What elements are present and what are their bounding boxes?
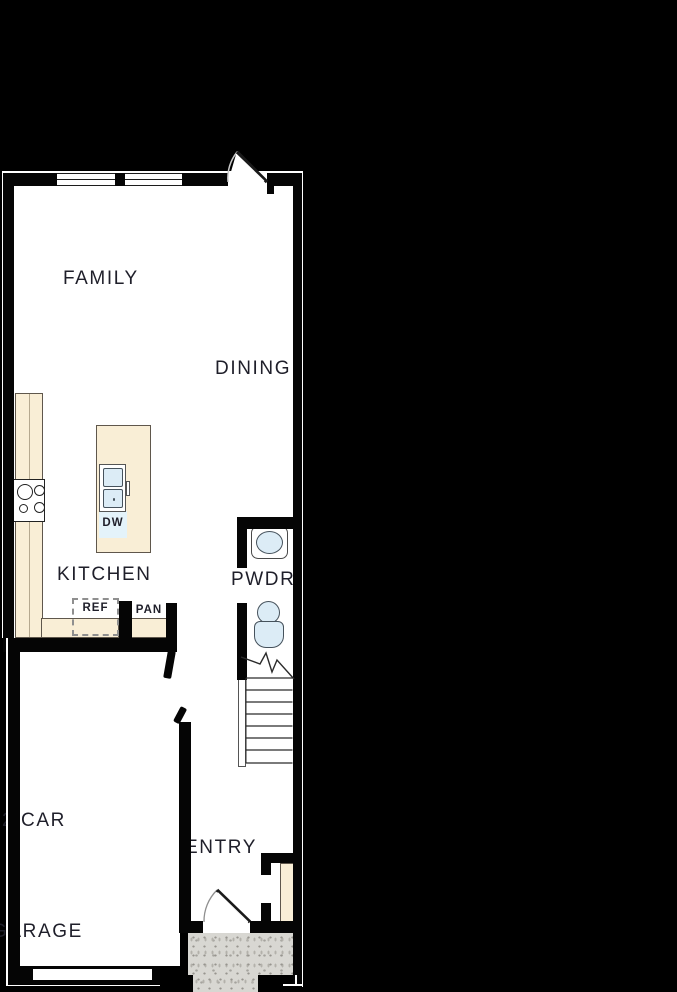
wall-entry-bottom-right [250, 921, 303, 933]
wall-entry-bottom-left [179, 921, 203, 933]
pantry-shelf [131, 618, 167, 638]
porch-step [193, 975, 258, 992]
outline-top [3, 171, 303, 173]
room-label-kitchen: KITCHEN [57, 564, 152, 586]
cooktop-icon [13, 479, 45, 522]
wall-closet-stub-lower [261, 903, 271, 923]
outline-left-garage [6, 638, 8, 985]
wall-powder-left-lower [237, 603, 247, 680]
burner-icon [19, 504, 28, 513]
wall-top-c [182, 173, 228, 186]
room-label-dining: DINING [215, 358, 291, 380]
toilet-bowl [254, 621, 284, 648]
outline-corner-h [283, 984, 303, 986]
burner-icon [17, 484, 33, 500]
outline-right [302, 171, 304, 987]
dishwasher-lower-door [103, 489, 123, 508]
wall-powder-left-upper [237, 517, 247, 568]
wall-left-garage [8, 638, 20, 985]
top-door-gap-floor [228, 173, 267, 186]
label-refrigerator: REF [72, 602, 119, 614]
dishwasher-knob [113, 498, 116, 501]
wall-ref-pan-separator [119, 601, 132, 639]
porch [188, 933, 295, 975]
window-pane-line [57, 179, 115, 180]
sink-icon [251, 526, 288, 559]
label-pantry: PAN [129, 604, 169, 616]
window [57, 173, 115, 186]
entry-closet-shelf [280, 863, 294, 925]
floor-plan: FAMILY DINING KITCHEN PWDR ENTRY 2 CAR G… [0, 0, 677, 992]
window-pane-line [125, 179, 182, 180]
outline-bottom-garage [6, 985, 160, 987]
wall-top-b [115, 173, 125, 186]
door-jamb [267, 186, 274, 194]
garage-door [33, 969, 152, 980]
room-label-family: FAMILY [63, 268, 139, 290]
window [125, 173, 182, 186]
burner-icon [34, 502, 45, 513]
wall-left [3, 173, 14, 638]
dishwasher-handle [126, 481, 130, 496]
dishwasher-upper-door [103, 468, 123, 487]
room-label-powder: PWDR [231, 569, 295, 591]
label-dishwasher: DW [99, 517, 127, 529]
wall-pantry-right [166, 603, 177, 650]
burner-icon [34, 485, 45, 496]
dishwasher-icon [99, 464, 126, 512]
wall-kitchen-garage [3, 638, 177, 652]
stair-handrail [238, 677, 246, 767]
wall-garage-entry [179, 722, 191, 933]
sink-basin [256, 531, 283, 554]
room-label-entry: ENTRY [185, 837, 257, 859]
outline-left [2, 171, 4, 638]
wall-closet-stub-upper [261, 853, 271, 875]
